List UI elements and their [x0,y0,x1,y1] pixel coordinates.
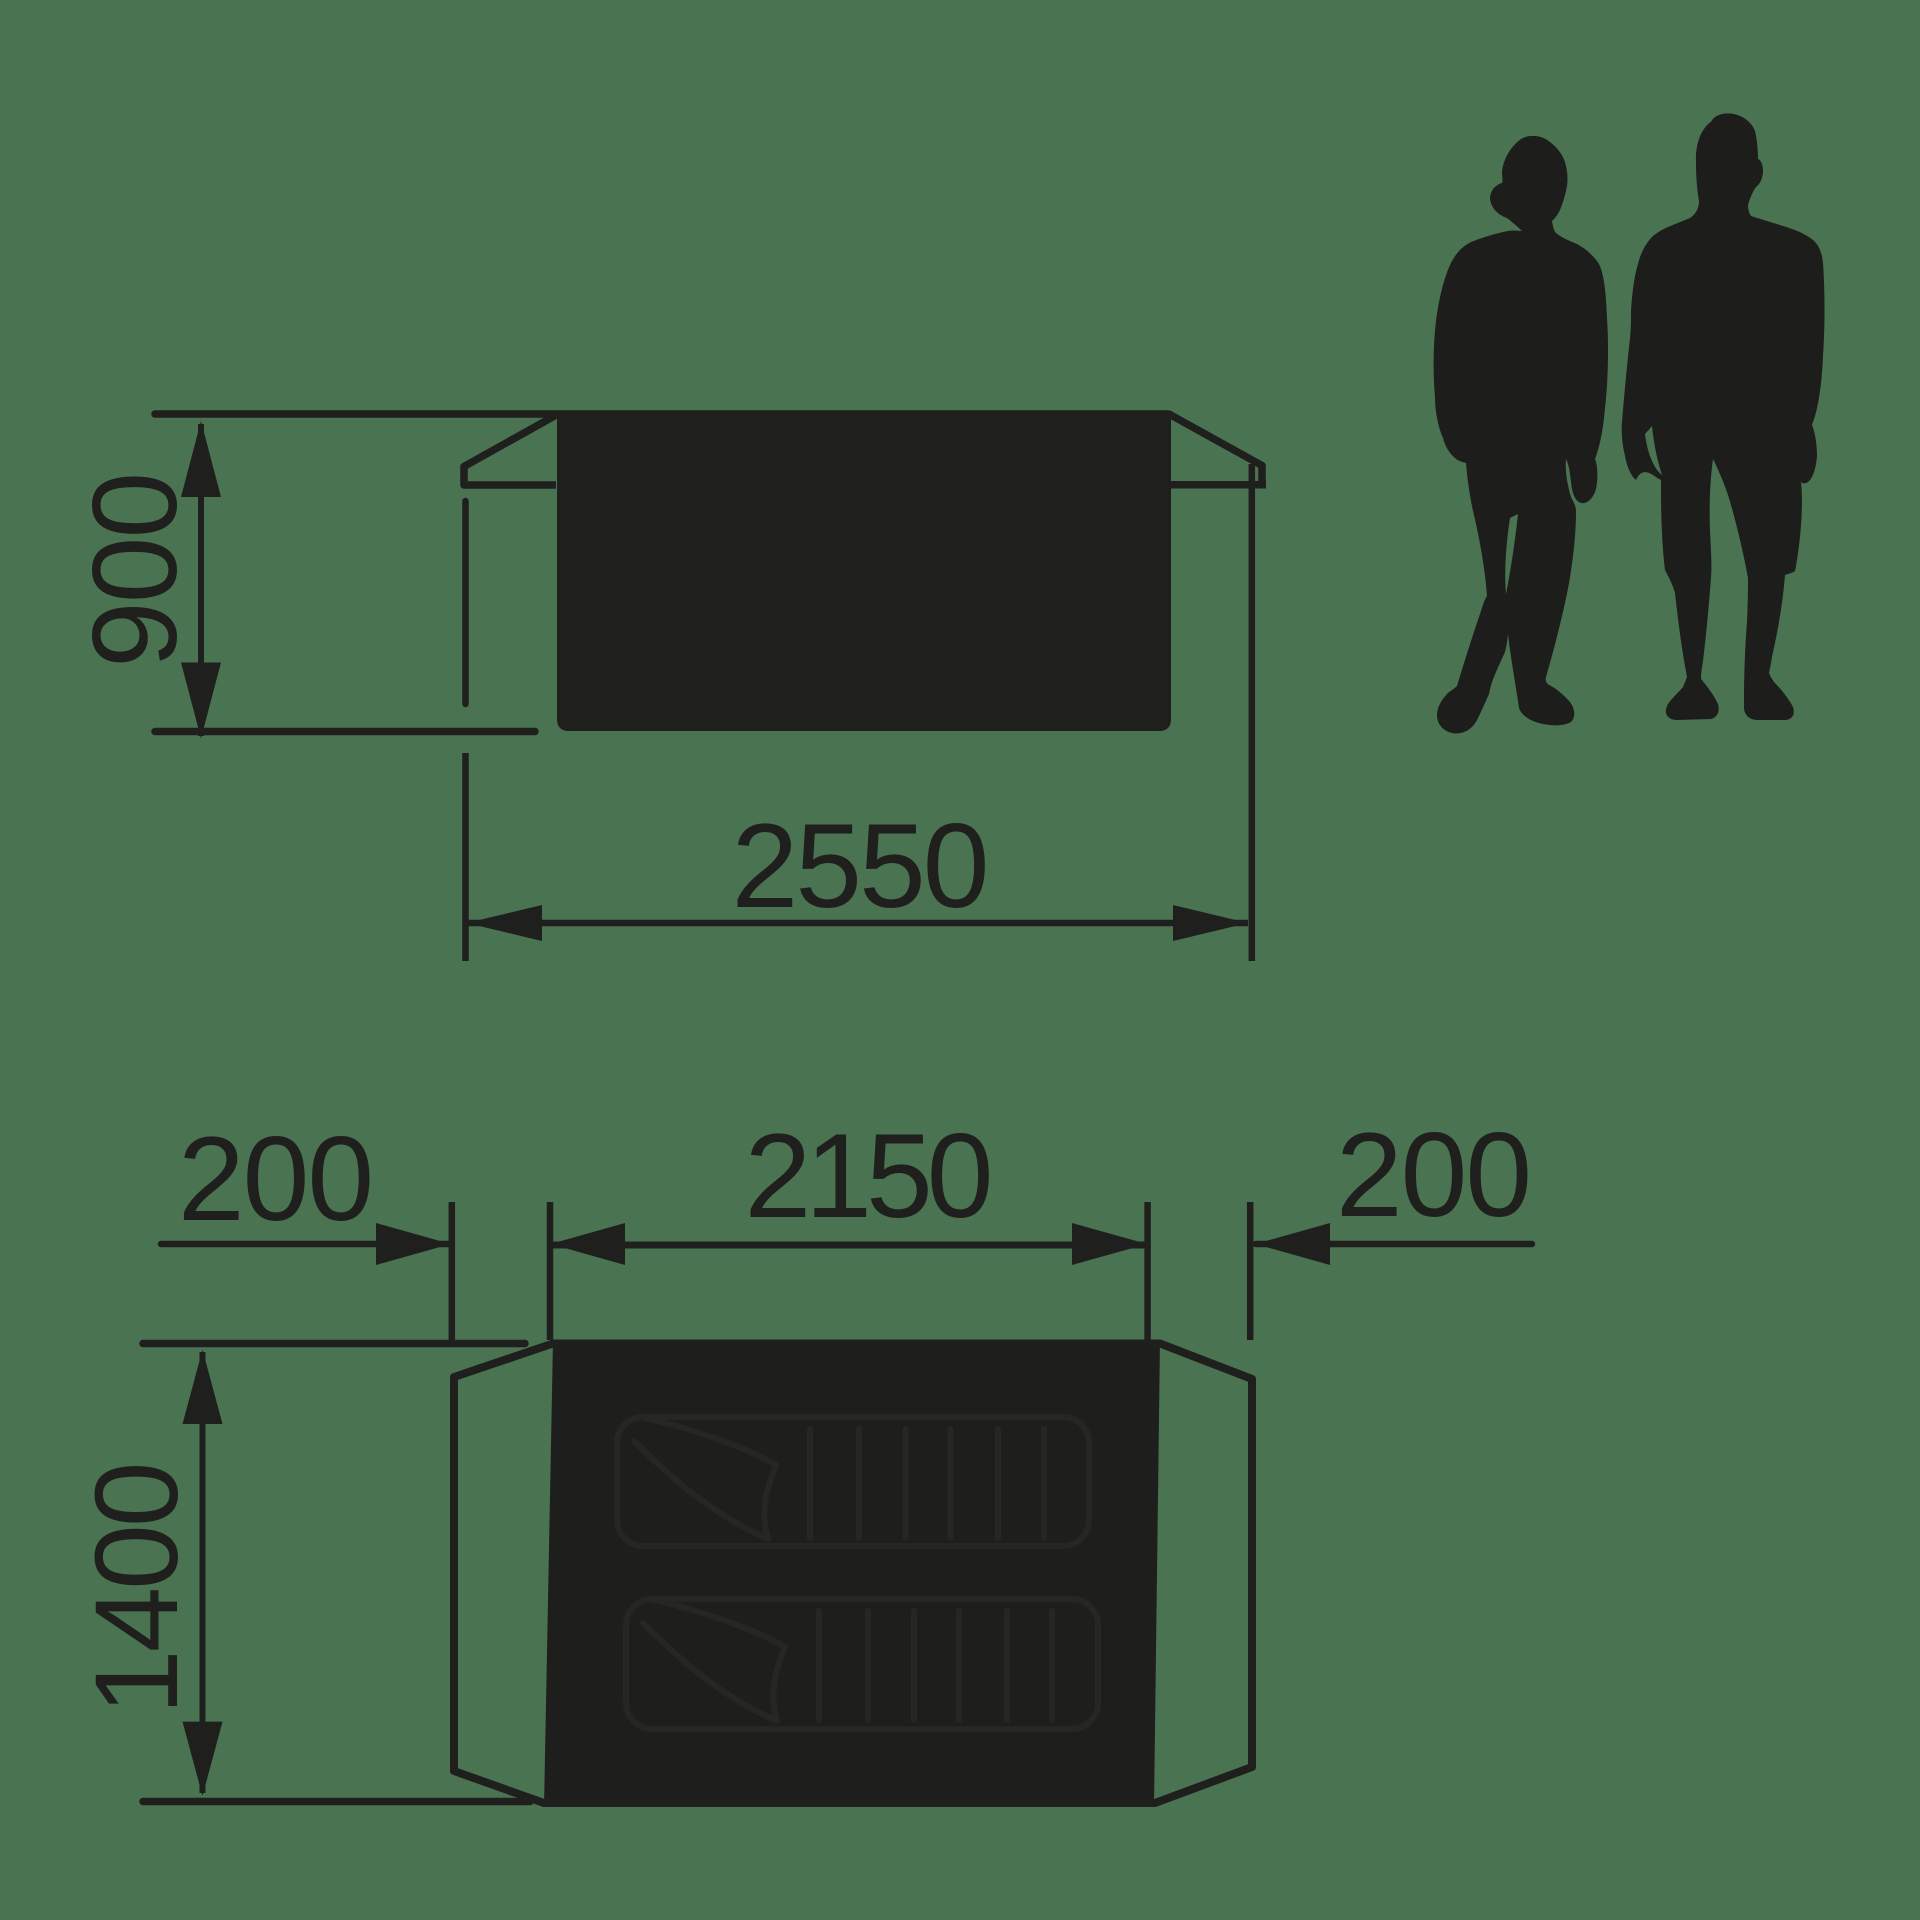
svg-text:900: 900 [68,474,202,668]
svg-text:2150: 2150 [745,1109,990,1243]
svg-text:1400: 1400 [71,1464,203,1715]
svg-text:200: 200 [1336,1108,1530,1242]
svg-text:2550: 2550 [732,799,987,933]
svg-text:200: 200 [178,1112,372,1246]
